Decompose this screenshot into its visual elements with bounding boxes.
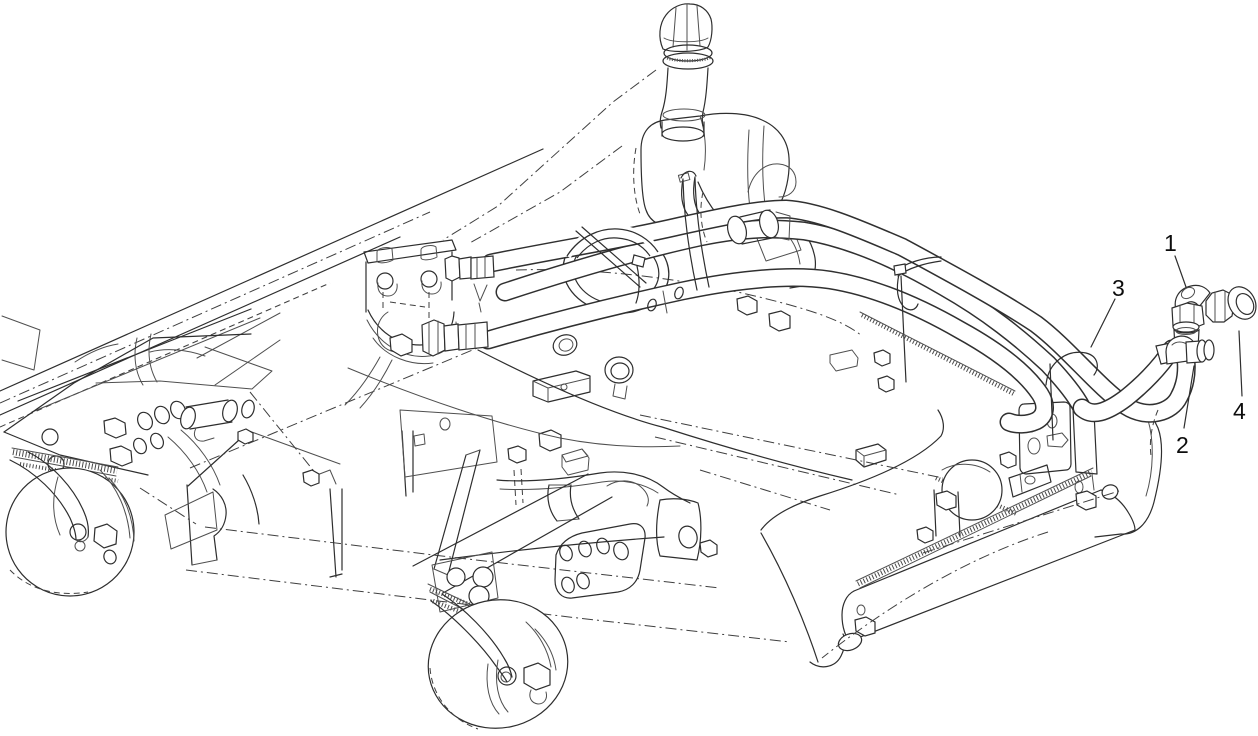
svg-text:4: 4 xyxy=(1233,398,1246,424)
svg-text:3: 3 xyxy=(1112,275,1125,301)
svg-text:1: 1 xyxy=(1164,230,1177,256)
svg-text:2: 2 xyxy=(1176,432,1189,458)
